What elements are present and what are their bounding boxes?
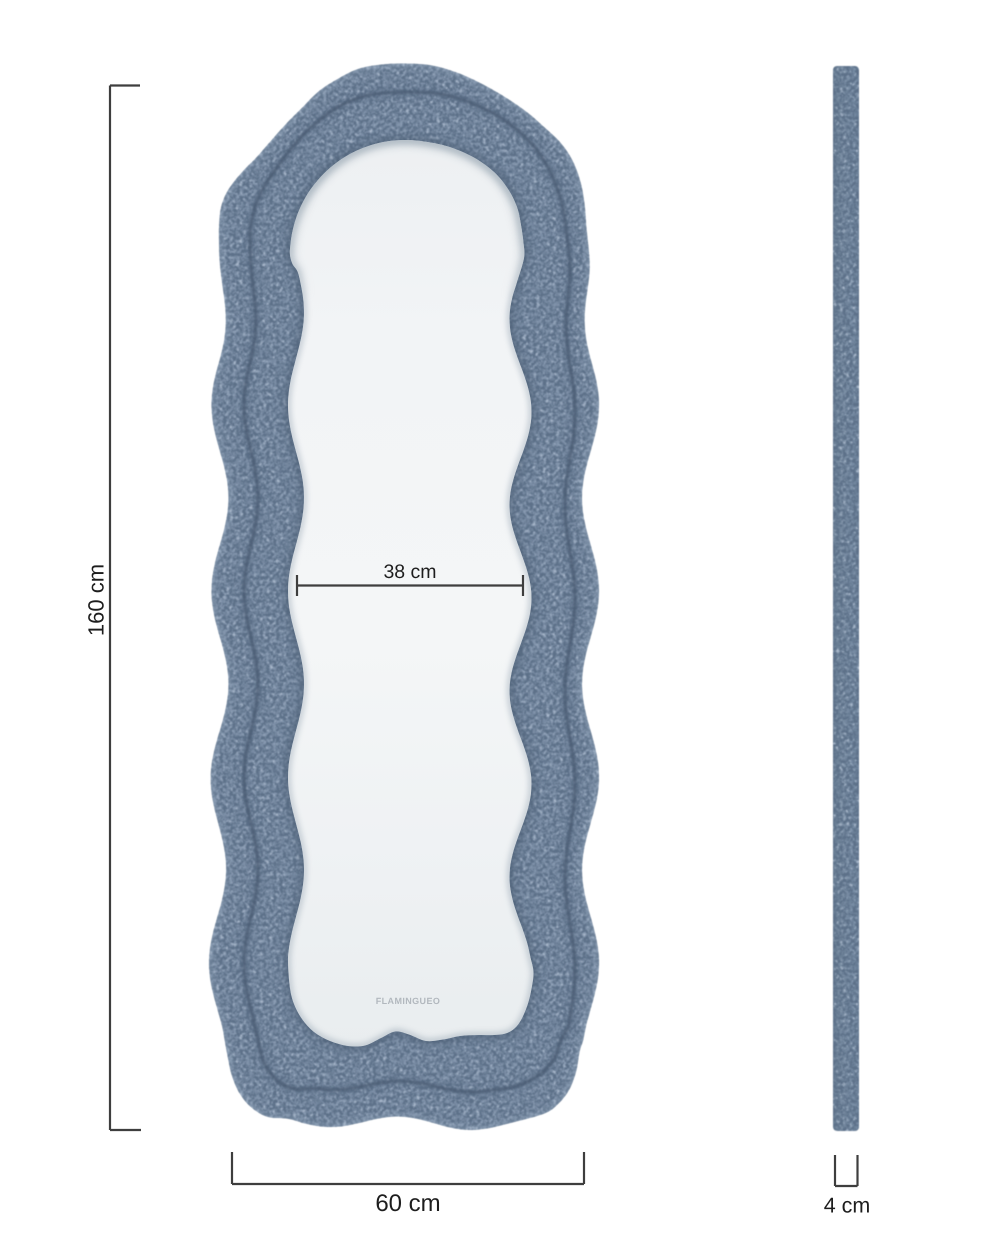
svg-text:38 cm: 38 cm <box>383 561 436 583</box>
svg-text:4 cm: 4 cm <box>824 1194 871 1218</box>
svg-text:160 cm: 160 cm <box>84 564 109 636</box>
svg-text:60 cm: 60 cm <box>375 1190 440 1217</box>
svg-text:FLAMINGUEO: FLAMINGUEO <box>376 996 441 1006</box>
